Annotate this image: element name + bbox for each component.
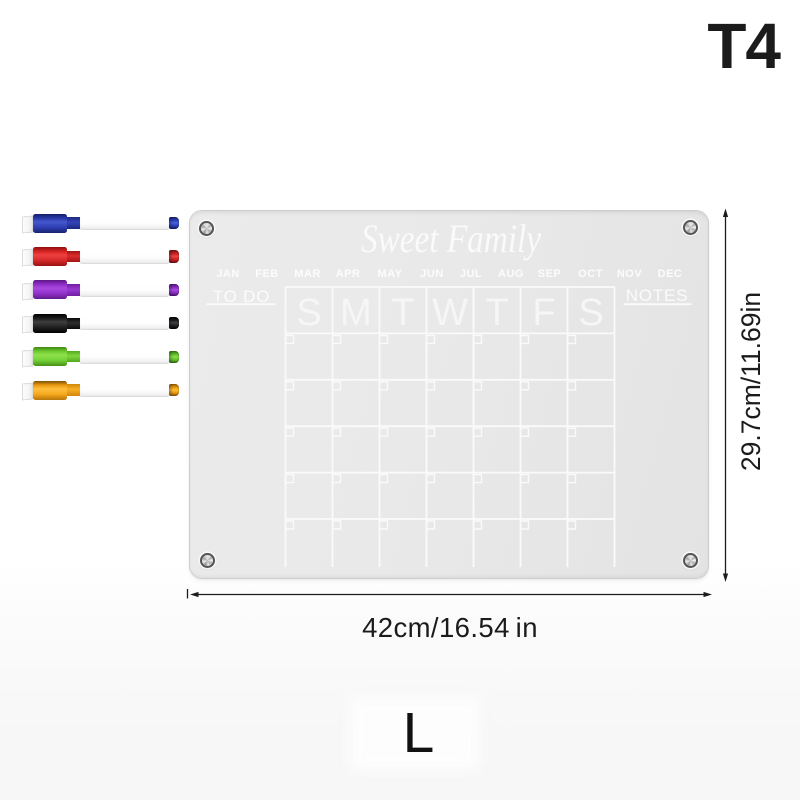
svg-text:T4: T4 — [707, 10, 781, 82]
svg-text:JUN: JUN — [420, 268, 444, 280]
svg-text:JUL: JUL — [460, 268, 482, 280]
svg-text:Sweet Family: Sweet Family — [361, 216, 541, 261]
svg-text:S: S — [296, 292, 321, 334]
svg-text:AUG: AUG — [498, 268, 524, 280]
svg-text:M: M — [340, 292, 372, 334]
svg-text:OCT: OCT — [578, 268, 603, 280]
svg-text:42cm/16.54 in: 42cm/16.54 in — [362, 612, 538, 643]
svg-text:NOV: NOV — [617, 268, 643, 280]
svg-text:TO DO: TO DO — [213, 287, 271, 306]
svg-text:SEP: SEP — [538, 268, 562, 280]
svg-text:T: T — [485, 292, 508, 334]
svg-text:DEC: DEC — [658, 268, 683, 280]
svg-text:L: L — [403, 701, 435, 765]
svg-text:F: F — [532, 292, 555, 334]
svg-text:JAN: JAN — [216, 268, 240, 280]
svg-text:S: S — [578, 292, 603, 334]
svg-text:APR: APR — [336, 268, 361, 280]
svg-text:W: W — [432, 292, 468, 334]
svg-text:MAY: MAY — [378, 268, 403, 280]
svg-text:29.7cm/11.69in: 29.7cm/11.69in — [736, 292, 766, 471]
svg-text:T: T — [391, 292, 414, 334]
svg-text:NOTES: NOTES — [626, 286, 689, 305]
svg-text:MAR: MAR — [294, 268, 321, 280]
svg-text:FEB: FEB — [255, 268, 279, 280]
